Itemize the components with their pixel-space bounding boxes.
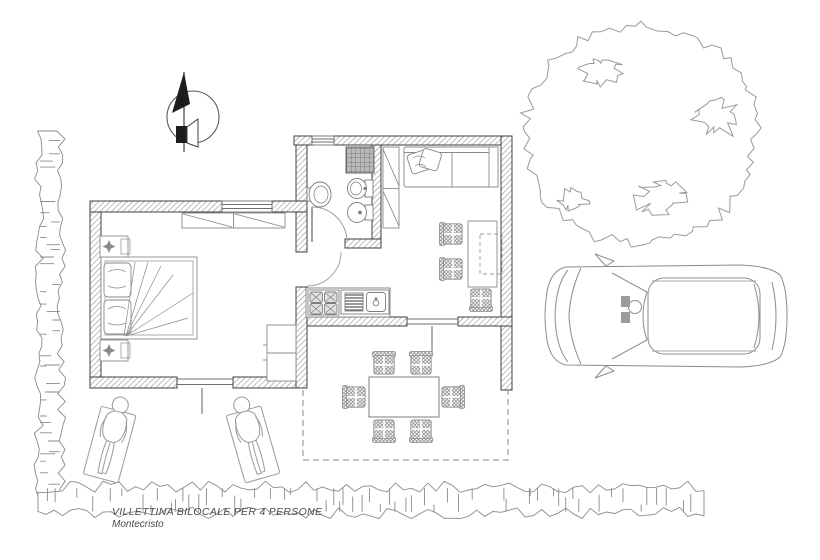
sofa [404,147,498,187]
car-mirror-bottom [595,366,614,378]
car-mirror-top [595,254,614,266]
plan-subtitle: Montecristo [112,519,322,531]
terrace [303,352,508,461]
living-room [404,147,502,312]
stone-wall-left [34,131,66,497]
bathroom-door [312,207,347,242]
nightstand-bottom [100,340,130,361]
tree-scribble-1 [578,59,623,87]
bedroom-door [307,252,341,286]
tree-scribble-2 [691,97,737,136]
tree-outline [521,21,762,247]
tree-canopy [521,21,762,247]
north-arrow-icon [167,72,219,152]
sun-loungers [83,392,280,483]
chair [343,386,366,409]
chair [373,420,396,443]
hall-wardrobe [383,147,399,228]
car-body [545,265,787,367]
chair [442,386,465,409]
living-table [468,221,502,287]
bedroom-wardrobe [182,213,285,228]
bidet [348,203,374,223]
chair [470,289,493,312]
floor-plan-page: VILLETTINA BILOCALE PER 4 PERSONE Montec… [0,0,820,560]
stove [308,290,339,315]
chair [410,420,433,443]
terrace-table [369,377,439,417]
floor-plan-drawing [0,0,820,560]
tree-scribble-4 [557,188,590,211]
chair [440,223,463,246]
plan-title: VILLETTINA BILOCALE PER 4 PERSONE [112,506,322,518]
sun-lounger-right [222,392,280,483]
bedroom-cabinet [263,325,296,381]
chair [410,352,433,375]
bedroom [100,213,296,381]
kitchen-sink [341,290,389,314]
double-bed [101,257,197,339]
bathroom-window [312,136,334,145]
shower-tray [346,147,374,173]
door-swings [307,207,347,286]
title-block: VILLETTINA BILOCALE PER 4 PERSONE Montec… [112,506,322,531]
bathroom [307,147,374,223]
sun-lounger-left [83,393,140,483]
nightstand-top [100,236,130,257]
bedroom-window [222,201,272,212]
kitchen [306,288,390,317]
wash-basin [307,182,331,207]
car-top-view [545,254,787,378]
tree-scribble-3 [633,180,688,215]
chair [440,258,463,281]
toilet [348,179,374,199]
drainboard [345,293,363,311]
chair [373,352,396,375]
